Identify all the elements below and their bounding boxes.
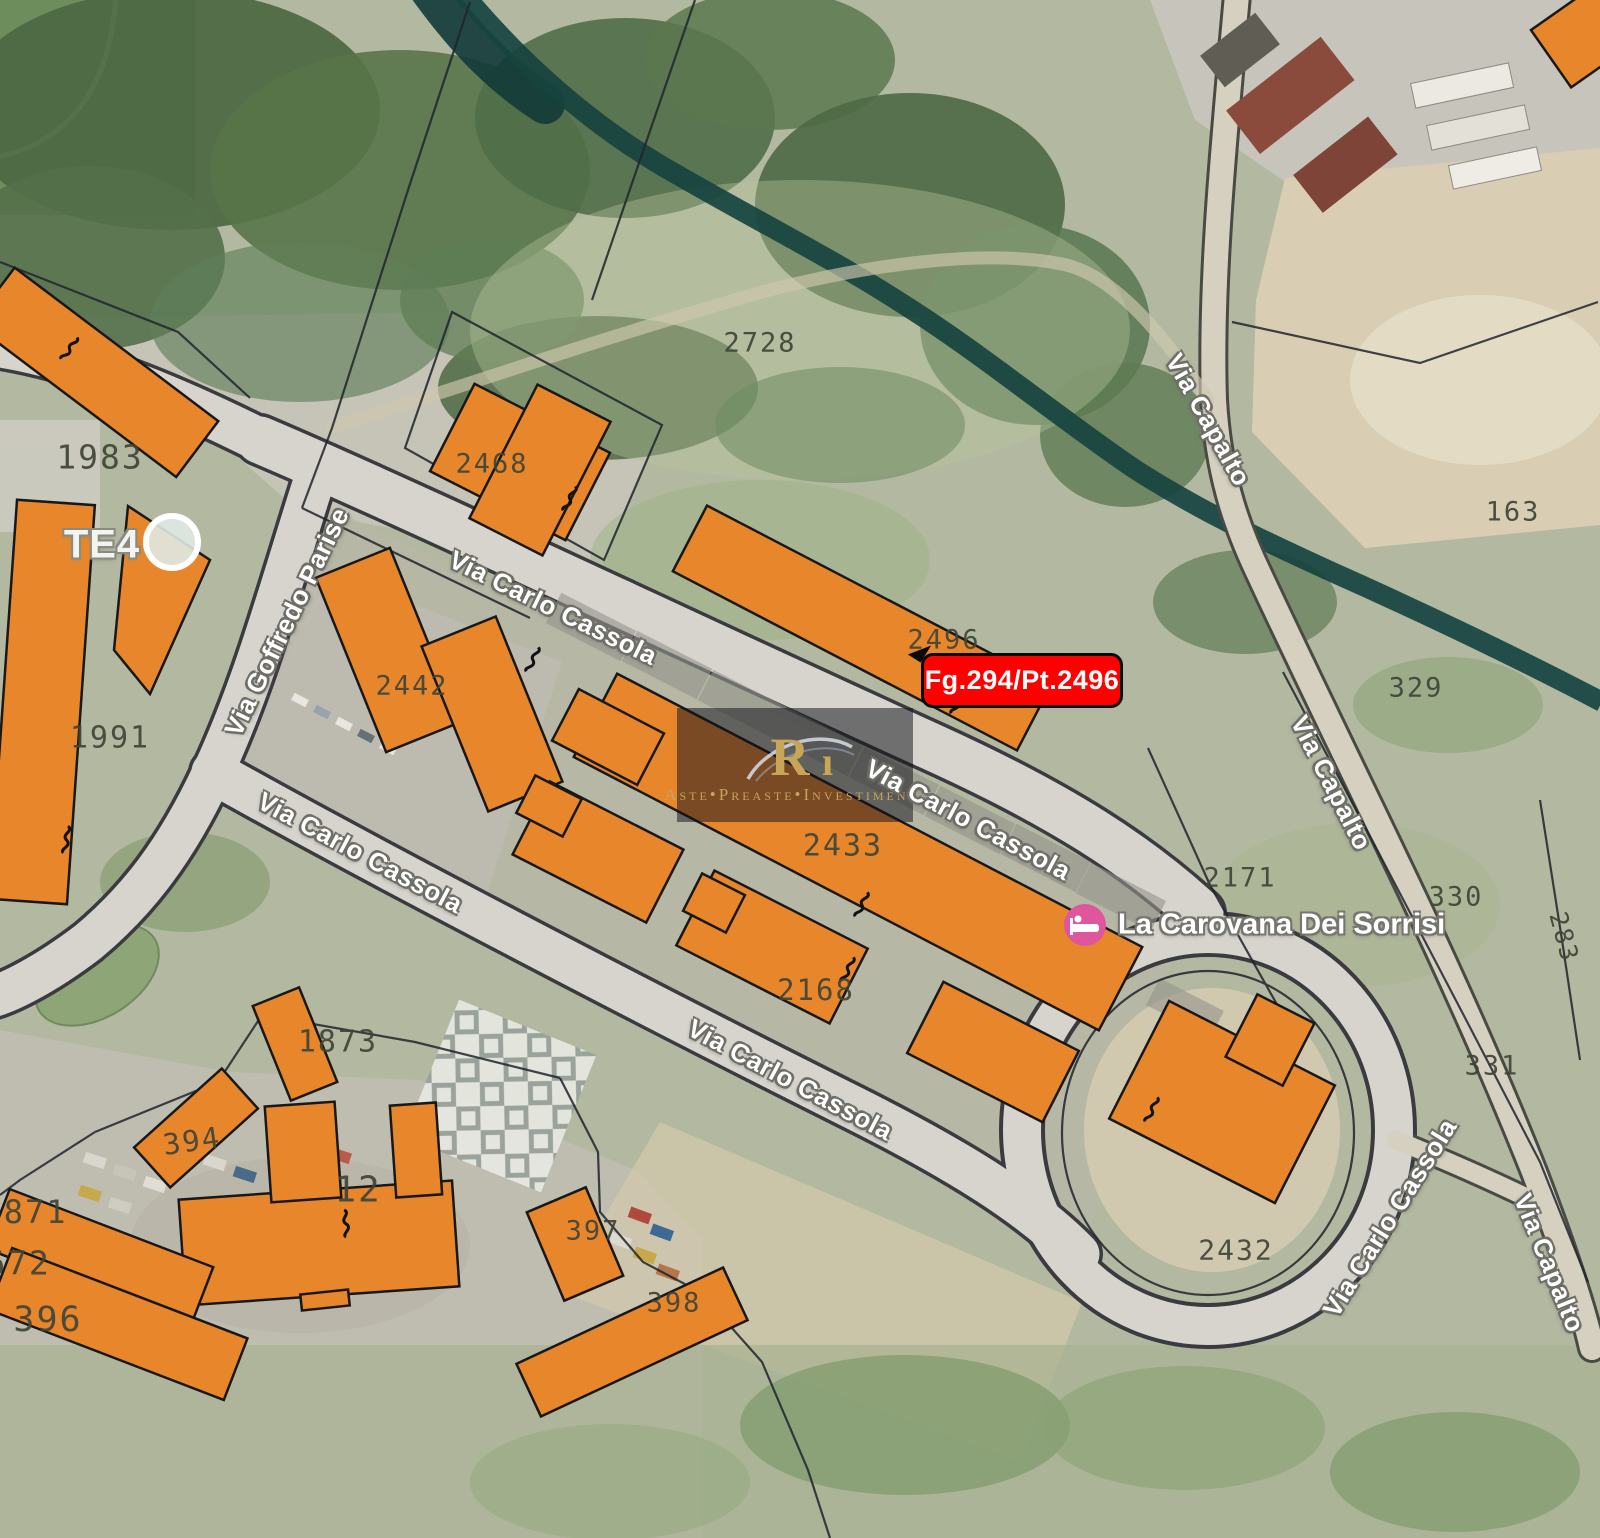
building-polygon [0, 500, 95, 904]
lodging-icon[interactable] [1064, 904, 1106, 946]
map[interactable]: { "map": { "type": "cadastral-satellite-… [0, 0, 1600, 1538]
building-polygon [300, 1290, 349, 1311]
parcel-callout[interactable]: Fg.294/Pt.2496 [921, 653, 1123, 708]
watermark-logo-icon: R ı [720, 725, 870, 783]
svg-text:R: R [771, 727, 811, 783]
building-polygon [390, 1103, 442, 1198]
watermark-brand-text: Aste•Preaste•Investimenti [664, 785, 926, 805]
building-polygon [265, 1102, 342, 1203]
svg-text:ı: ı [822, 739, 833, 783]
parcel-callout-text: Fg.294/Pt.2496 [925, 665, 1120, 696]
transit-station-icon[interactable] [146, 516, 198, 568]
watermark: R ı Aste•Preaste•Investimenti [677, 708, 913, 822]
